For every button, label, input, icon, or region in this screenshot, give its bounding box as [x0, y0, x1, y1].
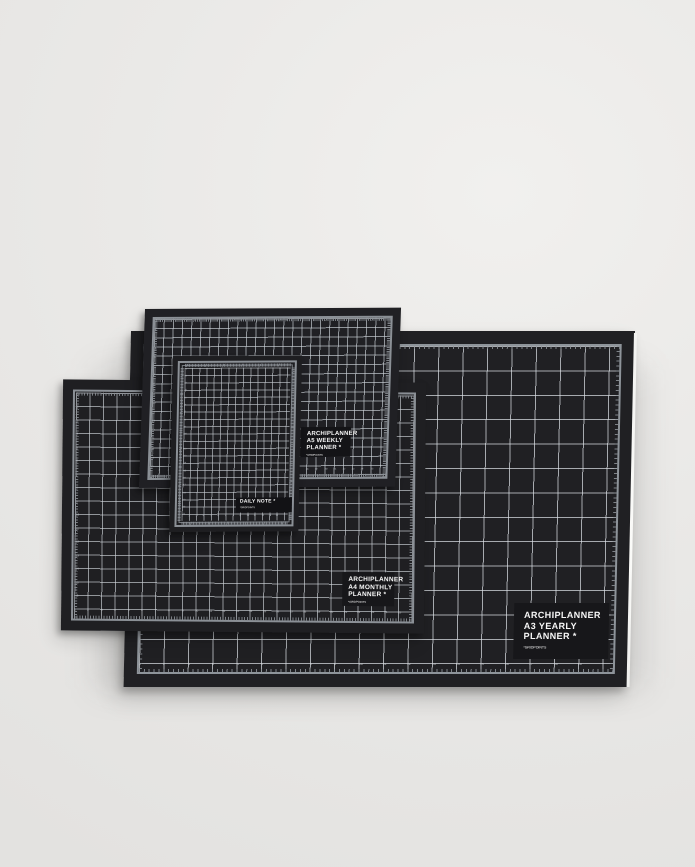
a4-label: ARCHIPLANNER A4 MONTHLY PLANNER * *GRIDP…	[342, 572, 394, 606]
brand-text: ARCHIPLANNER	[524, 610, 609, 621]
title-text: DAILY NOTE *	[240, 499, 292, 505]
footnote-text: *GRIDPOINTS	[306, 454, 325, 457]
a5-label: ARCHIPLANNER A5 WEEKLY PLANNER * *GRIDPO…	[300, 427, 351, 457]
daily-note-label: DAILY NOTE * *GRIDPOINTS	[236, 497, 292, 512]
brand-text: ARCHIPLANNER	[348, 576, 394, 584]
ruler-ticks-bottom	[181, 521, 287, 525]
ruler-ticks-bottom	[139, 669, 613, 672]
footnote-text: *GRIDPOINTS	[240, 506, 260, 508]
daily-note-pad: DAILY NOTE * *GRIDPOINTS 123456789101112…	[169, 355, 302, 532]
footnote-text: *GRIDPOINTS	[348, 600, 369, 603]
product-text: PLANNER *	[523, 631, 608, 642]
footnote-text: *GRIDPOINTS	[523, 646, 572, 649]
ruler-numbers-bottom: 1234567891011121314	[181, 514, 287, 521]
ruler-numbers-bottom: 12345678910111213141516171819	[139, 663, 613, 669]
product-text: PLANNER *	[306, 445, 350, 452]
a3-label: ARCHIPLANNER A3 YEARLY PLANNER * *GRIDPO…	[513, 603, 609, 659]
product-text: PLANNER *	[348, 591, 394, 599]
size-text: A3 YEARLY	[524, 621, 609, 632]
ruler-ticks-top	[184, 363, 290, 367]
